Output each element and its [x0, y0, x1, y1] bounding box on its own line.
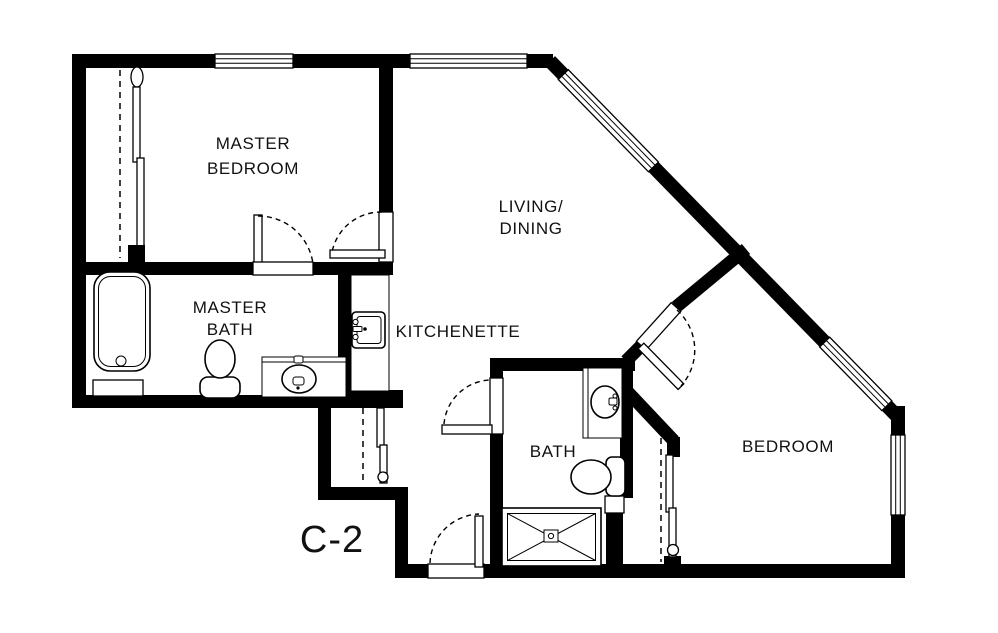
- mbr-living-door-swing: [332, 212, 382, 252]
- window-angled-lower: [820, 337, 892, 410]
- entry-door-swing: [430, 514, 479, 563]
- room-labels: MASTER BEDROOM MASTER BATH LIVING/ DININ…: [193, 134, 834, 561]
- master-bath-toilet: [200, 340, 240, 398]
- master-bath-label-line1: MASTER: [193, 298, 267, 317]
- window-living: [410, 54, 527, 68]
- floor-plan-canvas: MASTER BEDROOM MASTER BATH LIVING/ DININ…: [0, 0, 998, 633]
- kitchenette-label: KITCHENETTE: [396, 322, 521, 341]
- wall-closet-bottom: [318, 487, 408, 500]
- bath-door-leaf: [442, 425, 492, 434]
- living-dining-label-line1: LIVING/: [499, 197, 564, 216]
- master-bath-vanity-sink: [262, 356, 346, 397]
- master-bath-label-line2: BATH: [207, 320, 253, 339]
- mbr-living-door: [330, 212, 393, 262]
- bath-vanity-sink: [583, 368, 622, 438]
- wall-mbr-living: [379, 54, 393, 212]
- hall-closet-sliding-door: [377, 408, 388, 483]
- floor-plan-drawing: MASTER BEDROOM MASTER BATH LIVING/ DININ…: [0, 0, 998, 633]
- master-bath-door: [253, 215, 313, 275]
- angled-door-swing: [677, 310, 695, 386]
- wall-entry-step: [395, 487, 408, 578]
- mbr-living-door-leaf: [330, 250, 385, 258]
- wall-angled-corridor: [676, 249, 746, 307]
- hall-closet-door-pull: [378, 472, 388, 482]
- tub-foot-niche: [93, 380, 143, 396]
- master-bedroom-label-line2: BEDROOM: [207, 159, 299, 178]
- living-dining-label-line2: DINING: [499, 219, 562, 238]
- angled-door-leaf: [638, 343, 684, 389]
- shower: [502, 508, 601, 566]
- bedroom-corridor-angled-door: [636, 303, 694, 390]
- bath-door-swing: [444, 380, 492, 424]
- window-master-bedroom: [215, 54, 293, 68]
- bedroom-label: BEDROOM: [742, 437, 834, 456]
- wall-brcloset-bottom-stub: [664, 556, 681, 568]
- mbr-closet-sliding-door: [128, 67, 145, 264]
- bath-label: BATH: [530, 442, 576, 461]
- bedroom-closet-door-pull: [668, 545, 679, 556]
- wall-left: [72, 54, 86, 408]
- kitchenette-sink: [352, 312, 385, 348]
- unit-label: C-2: [300, 519, 364, 561]
- window-angled-upper: [558, 70, 658, 172]
- entry-door: [428, 514, 484, 578]
- bath-wall-niche: [605, 496, 624, 513]
- closet-door-pull: [131, 67, 143, 87]
- bathtub: [94, 272, 150, 371]
- master-bedroom-label-line1: MASTER: [216, 134, 290, 153]
- interior-walls: [86, 54, 746, 568]
- angled-door-opening: [636, 303, 680, 350]
- bath-door: [442, 378, 503, 434]
- master-bath-door-swing: [258, 216, 313, 264]
- wall-shower-right: [606, 512, 623, 567]
- bath-toilet: [571, 457, 625, 496]
- bedroom-closet-sliding-door: [666, 455, 679, 557]
- master-bath-door-opening: [253, 262, 313, 275]
- wall-brcloset-top-stub: [667, 437, 680, 457]
- entry-door-leaf: [475, 516, 483, 567]
- master-bath-door-leaf: [254, 215, 262, 267]
- wall-closet-left: [318, 395, 331, 500]
- window-bedroom-right: [891, 435, 905, 515]
